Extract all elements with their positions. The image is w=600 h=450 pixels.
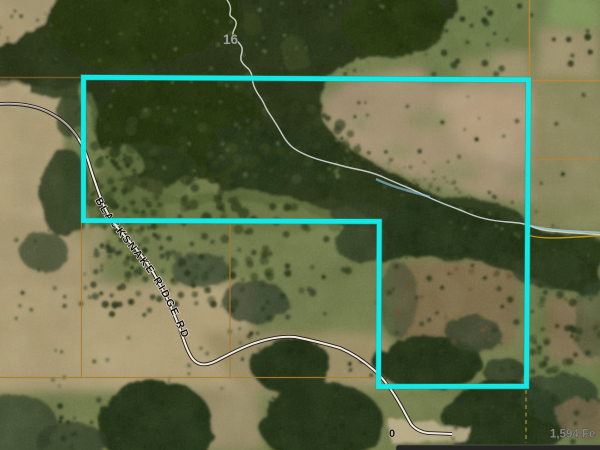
svg-text:1,594 Fe: 1,594 Fe xyxy=(550,429,595,441)
svg-text:16: 16 xyxy=(223,32,239,47)
svg-text:0: 0 xyxy=(389,428,395,440)
